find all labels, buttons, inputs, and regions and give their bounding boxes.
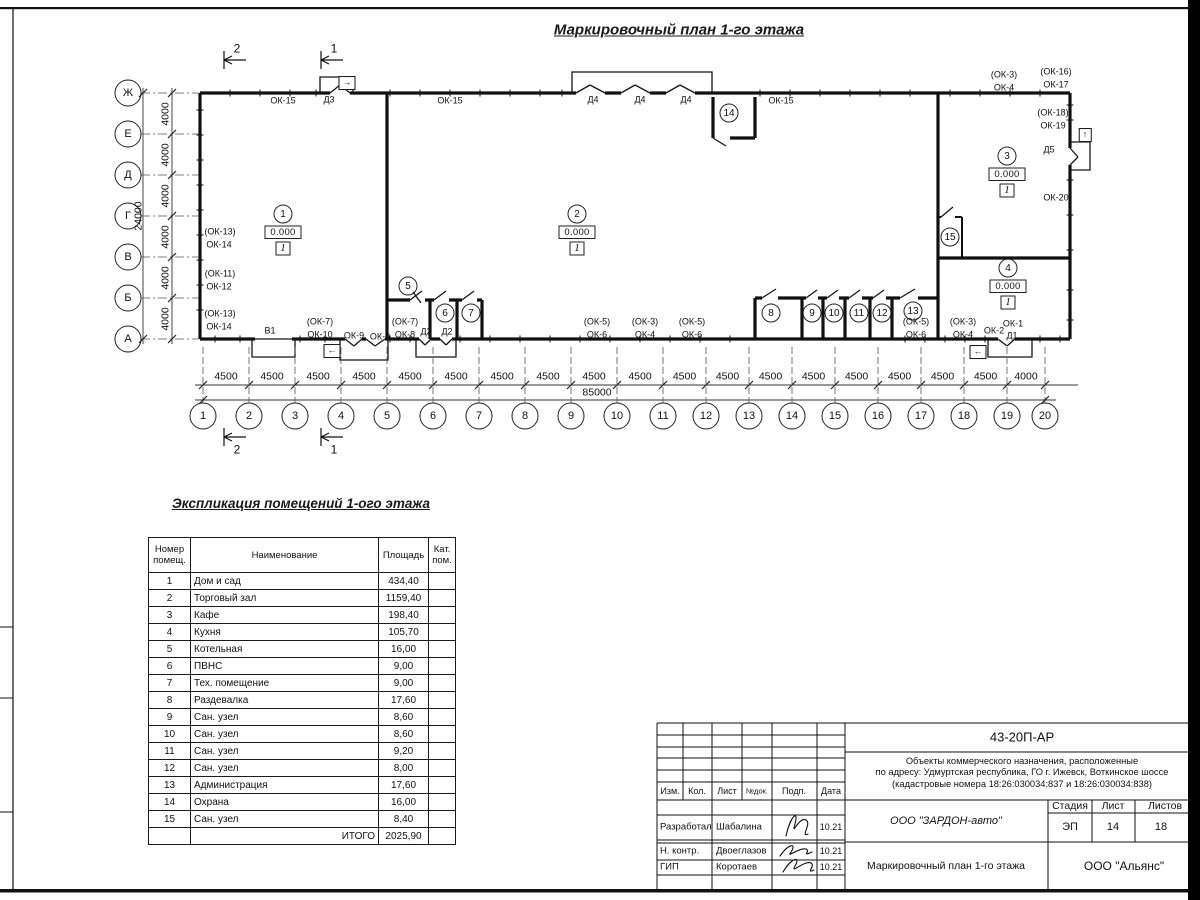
room-name-cell: Сан. узел <box>191 709 379 726</box>
room-area-cell: 17,60 <box>379 777 429 794</box>
room-name-cell: Сан. узел <box>191 760 379 777</box>
sheets-value: 18 <box>1155 821 1167 833</box>
door-mark-label: Д4 <box>587 95 598 104</box>
dimension-label: 4000 <box>160 143 171 166</box>
axis-letter: Б <box>124 293 131 305</box>
door-mark-label: Д2 <box>441 327 452 336</box>
axis-letter: Ж <box>123 88 133 100</box>
axis-number: 13 <box>743 411 755 423</box>
table-row: 1Дом и сад434,40 <box>149 573 456 590</box>
sheet-label: Лист <box>1102 800 1125 812</box>
table-header-row: Номер помещ. Наименование Площадь Кат. п… <box>149 538 456 573</box>
window-mark-label: ОК-4 <box>635 330 655 339</box>
dimension-label: 4500 <box>888 371 911 382</box>
room-category-cell <box>429 760 456 777</box>
room-category-cell <box>429 692 456 709</box>
dimension-label: 4000 <box>160 184 171 207</box>
sheets-label: Листов <box>1148 800 1182 812</box>
room-number: 9 <box>809 308 815 319</box>
floor-type-mark: 1 <box>574 243 580 255</box>
table-row: 4Кухня105,70 <box>149 624 456 641</box>
titleblock-col-header: Кол. <box>688 786 706 796</box>
axis-letter: Е <box>124 129 131 141</box>
table-row: 15Сан. узел8,40 <box>149 811 456 828</box>
axis-letter: А <box>124 334 131 346</box>
col-header-name: Наименование <box>191 538 379 573</box>
section-mark-label: 2 <box>234 444 241 457</box>
door-mark-label: Д2 <box>420 327 431 336</box>
room-area-cell: 434,40 <box>379 573 429 590</box>
room-name-cell: Дом и сад <box>191 573 379 590</box>
titleblock-col-header: Подп. <box>782 786 806 796</box>
project-description-line: Объекты коммерческого назначения, распол… <box>906 756 1138 766</box>
window-mark-label: (ОК-13) <box>204 309 235 318</box>
table-row: 9Сан. узел8,60 <box>149 709 456 726</box>
axis-number: 11 <box>657 411 668 423</box>
window-mark-label: ОК-9 <box>370 332 390 341</box>
total-value: 2025,90 <box>379 828 429 845</box>
door-mark-label: Д3 <box>323 95 334 104</box>
room-category-cell <box>429 607 456 624</box>
room-area-cell: 16,00 <box>379 641 429 658</box>
dimension-label: 4500 <box>628 371 651 382</box>
room-name-cell: Сан. узел <box>191 743 379 760</box>
room-number: 8 <box>768 308 774 319</box>
room-name-cell: Администрация <box>191 777 379 794</box>
doc-number: 43-20П-АР <box>990 730 1054 745</box>
room-category-cell <box>429 709 456 726</box>
gate-mark-label: В1 <box>264 326 275 335</box>
drawing-title: Маркировочный план 1-го этажа <box>554 22 804 39</box>
room-number-cell: 12 <box>149 760 191 777</box>
axis-number: 19 <box>1001 411 1013 423</box>
window-mark-label: ОК-9 <box>344 331 364 340</box>
window-mark-label: ОК-1 <box>1003 319 1023 328</box>
window-mark-label: ОК-14 <box>206 322 231 331</box>
section-mark-label: 1 <box>331 444 338 457</box>
window-mark-label: ОК-4 <box>953 330 973 339</box>
window-mark-label: ОК-6 <box>906 330 926 339</box>
room-category-cell <box>429 573 456 590</box>
dimension-label: 4500 <box>582 371 605 382</box>
table-total-row: ИТОГО 2025,90 <box>149 828 456 845</box>
explication-table: Номер помещ. Наименование Площадь Кат. п… <box>148 537 456 845</box>
room-name-cell: Тех. помещение <box>191 675 379 692</box>
dimension-label: 4500 <box>716 371 739 382</box>
axis-number: 16 <box>872 411 884 423</box>
window-mark-label: (ОК-3) <box>991 70 1017 79</box>
room-category-cell <box>429 624 456 641</box>
exit-arrow-icon: ← <box>324 344 341 358</box>
elevation-mark: 0.000 <box>564 228 589 238</box>
col-header-area: Площадь <box>379 538 429 573</box>
window-mark-label: ОК-4 <box>994 83 1014 92</box>
axis-number: 1 <box>200 411 206 423</box>
window-mark-label: ОК-8 <box>395 330 415 339</box>
exit-arrow-icon: ← <box>970 345 987 359</box>
room-number-cell: 1 <box>149 573 191 590</box>
axis-number: 12 <box>700 411 712 423</box>
drawing-sheet: Маркировочный план 1-го этажа Экспликаци… <box>0 0 1200 900</box>
room-number-cell: 15 <box>149 811 191 828</box>
window-mark-label: (ОК-13) <box>204 227 235 236</box>
window-mark-label: (ОК-7) <box>307 317 333 326</box>
axis-letter: Д <box>124 170 131 182</box>
person-date: 10.21 <box>820 822 843 832</box>
window-mark-label: ОК-2 <box>984 326 1004 335</box>
window-mark-label: (ОК-5) <box>903 317 929 326</box>
room-number-cell: 5 <box>149 641 191 658</box>
room-area-cell: 16,00 <box>379 794 429 811</box>
room-number: 11 <box>854 308 864 319</box>
person-name: Двоеглазов <box>716 846 767 857</box>
table-row: 7Тех. помещение9,00 <box>149 675 456 692</box>
room-number: 4 <box>1005 263 1011 274</box>
axis-letter: В <box>124 252 131 264</box>
window-mark-label: ОК-15 <box>437 96 462 105</box>
room-number: 1 <box>280 209 286 220</box>
person-name: Коротаев <box>716 862 757 873</box>
project-description-line: (кадастровые номера 18:26:030034:837 и 1… <box>892 779 1152 789</box>
floor-type-mark: 1 <box>1004 185 1010 197</box>
room-category-cell <box>429 641 456 658</box>
axis-number: 14 <box>786 411 798 423</box>
table-row: 5Котельная16,00 <box>149 641 456 658</box>
dimension-label: 4500 <box>931 371 954 382</box>
window-mark-label: (ОК-16) <box>1040 67 1071 76</box>
room-number-cell: 3 <box>149 607 191 624</box>
dimension-label: 4500 <box>214 371 237 382</box>
axis-number: 10 <box>611 411 623 423</box>
table-row: 11Сан. узел9,20 <box>149 743 456 760</box>
axis-number: 15 <box>829 411 841 423</box>
window-mark-label: ОК-10 <box>307 330 332 339</box>
room-number: 12 <box>876 308 887 319</box>
room-number-cell: 10 <box>149 726 191 743</box>
exit-arrow-icon: ↑ <box>1079 128 1092 142</box>
sheet-value: 14 <box>1107 821 1119 833</box>
firm-name: ООО "Альянс" <box>1084 859 1164 873</box>
axis-number: 6 <box>430 411 436 423</box>
room-number: 3 <box>1004 151 1010 162</box>
dimension-label: 4500 <box>974 371 997 382</box>
window-mark-label: ОК-20 <box>1043 193 1068 202</box>
table-row: 12Сан. узел8,00 <box>149 760 456 777</box>
stage-value: ЭП <box>1062 821 1078 833</box>
room-area-cell: 1159,40 <box>379 590 429 607</box>
section-mark-label: 1 <box>331 43 338 56</box>
dimension-label: 4500 <box>845 371 868 382</box>
door-mark-label: Д4 <box>680 95 691 104</box>
dimension-label: 4000 <box>160 102 171 125</box>
titleblock-col-header: №док. <box>746 787 768 796</box>
dimension-label: 4500 <box>802 371 825 382</box>
table-row: 14Охрана16,00 <box>149 794 456 811</box>
room-number: 15 <box>944 232 955 243</box>
room-area-cell: 105,70 <box>379 624 429 641</box>
dimension-label: 4000 <box>160 307 171 330</box>
axis-number: 7 <box>476 411 482 423</box>
room-number-cell: 14 <box>149 794 191 811</box>
axis-number: 18 <box>958 411 970 423</box>
room-name-cell: Торговый зал <box>191 590 379 607</box>
dimension-total-label: 24000 <box>133 201 144 230</box>
room-area-cell: 8,00 <box>379 760 429 777</box>
sheet-title: Маркировочный план 1-го этажа <box>867 860 1025 872</box>
axis-number: 9 <box>568 411 574 423</box>
room-category-cell <box>429 777 456 794</box>
dimension-label: 4500 <box>306 371 329 382</box>
room-number: 14 <box>723 108 734 119</box>
room-number-cell: 13 <box>149 777 191 794</box>
company-name: ООО "ЗАРДОН-авто" <box>890 815 1002 827</box>
room-number: 5 <box>405 281 411 292</box>
room-number-cell: 11 <box>149 743 191 760</box>
table-row: 2Торговый зал1159,40 <box>149 590 456 607</box>
window-mark-label: ОК-12 <box>206 282 231 291</box>
titleblock-col-header: Лист <box>717 786 737 796</box>
axis-number: 2 <box>246 411 252 423</box>
person-role: Н. контр. <box>660 846 699 857</box>
room-name-cell: Охрана <box>191 794 379 811</box>
room-category-cell <box>429 794 456 811</box>
room-area-cell: 8,60 <box>379 709 429 726</box>
axis-number: 17 <box>915 411 927 423</box>
explication-title: Экспликация помещений 1-ого этажа <box>172 496 430 511</box>
floor-type-mark: 1 <box>1005 297 1011 309</box>
dimension-label: 4500 <box>352 371 375 382</box>
room-area-cell: 9,20 <box>379 743 429 760</box>
elevation-mark: 0.000 <box>994 170 1019 180</box>
section-mark-label: 2 <box>234 43 241 56</box>
window-mark-label: (ОК-11) <box>205 269 236 278</box>
dimension-total-label: 85000 <box>582 387 611 398</box>
elevation-mark: 0.000 <box>270 228 295 238</box>
room-name-cell: Сан. узел <box>191 811 379 828</box>
total-label: ИТОГО <box>191 828 379 845</box>
room-name-cell: Котельная <box>191 641 379 658</box>
axis-number: 5 <box>384 411 390 423</box>
window-mark-label: (ОК-5) <box>679 317 705 326</box>
table-row: 8Раздевалка17,60 <box>149 692 456 709</box>
room-name-cell: Сан. узел <box>191 726 379 743</box>
dimension-label: 4000 <box>160 225 171 248</box>
window-mark-label: (ОК-18) <box>1037 108 1068 117</box>
col-header-number: Номер помещ. <box>149 538 191 573</box>
room-category-cell <box>429 743 456 760</box>
axis-number: 4 <box>338 411 344 423</box>
room-number: 13 <box>907 306 918 317</box>
floor-type-mark: 1 <box>280 243 286 255</box>
person-date: 10.21 <box>820 862 843 872</box>
window-mark-label: ОК-15 <box>768 96 793 105</box>
dimension-label: 4500 <box>444 371 467 382</box>
room-area-cell: 9,00 <box>379 675 429 692</box>
person-name: Шабалина <box>716 822 762 833</box>
room-name-cell: Кухня <box>191 624 379 641</box>
room-number: 6 <box>442 308 448 319</box>
room-area-cell: 198,40 <box>379 607 429 624</box>
table-row: 10Сан. узел8,60 <box>149 726 456 743</box>
table-row: 6ПВНС9,00 <box>149 658 456 675</box>
window-mark-label: (ОК-7) <box>392 317 418 326</box>
window-mark-label: ОК-15 <box>270 96 295 105</box>
room-area-cell: 8,60 <box>379 726 429 743</box>
exit-arrow-icon: → <box>339 76 356 90</box>
titleblock-col-header: Изм. <box>660 786 679 796</box>
door-mark-label: Д4 <box>634 95 645 104</box>
room-number-cell: 2 <box>149 590 191 607</box>
window-mark-label: ОК-6 <box>682 330 702 339</box>
person-role: ГИП <box>660 862 679 873</box>
axis-letter: Г <box>125 211 131 223</box>
window-mark-label: (ОК-5) <box>584 317 610 326</box>
window-mark-label: (ОК-3) <box>632 317 658 326</box>
room-category-cell <box>429 675 456 692</box>
room-number-cell: 6 <box>149 658 191 675</box>
room-area-cell: 8,40 <box>379 811 429 828</box>
room-name-cell: Раздевалка <box>191 692 379 709</box>
stage-label: Стадия <box>1052 800 1088 812</box>
sheet-right-edge-bar <box>1188 0 1200 900</box>
dimension-label: 4500 <box>260 371 283 382</box>
room-number: 7 <box>468 308 474 319</box>
dimension-label: 4500 <box>490 371 513 382</box>
room-name-cell: ПВНС <box>191 658 379 675</box>
door-mark-label: Д1 <box>1006 331 1017 340</box>
dimension-label: 4500 <box>398 371 421 382</box>
window-mark-label: (ОК-3) <box>950 317 976 326</box>
window-mark-label: ОК-17 <box>1043 80 1068 89</box>
project-description-line: по адресу: Удмуртская республика, ГО г. … <box>876 767 1169 777</box>
door-mark-label: Д5 <box>1043 145 1054 154</box>
room-category-cell <box>429 726 456 743</box>
window-mark-label: ОК-19 <box>1040 121 1065 130</box>
room-number: 2 <box>574 209 580 220</box>
room-number: 10 <box>828 308 839 319</box>
axis-number: 20 <box>1039 411 1051 423</box>
window-mark-label: ОК-14 <box>206 240 231 249</box>
dimension-label: 4000 <box>1014 371 1037 382</box>
col-header-category: Кат. пом. <box>429 538 456 573</box>
axis-number: 3 <box>292 411 298 423</box>
elevation-mark: 0.000 <box>995 282 1020 292</box>
dimension-label: 4500 <box>673 371 696 382</box>
room-area-cell: 9,00 <box>379 658 429 675</box>
room-number-cell: 9 <box>149 709 191 726</box>
room-number-cell: 8 <box>149 692 191 709</box>
dimension-label: 4500 <box>536 371 559 382</box>
table-row: 3Кафе198,40 <box>149 607 456 624</box>
room-category-cell <box>429 590 456 607</box>
person-role: Разработал <box>660 822 712 833</box>
room-category-cell <box>429 658 456 675</box>
person-date: 10.21 <box>820 846 843 856</box>
room-category-cell <box>429 811 456 828</box>
room-number-cell: 4 <box>149 624 191 641</box>
room-area-cell: 17,60 <box>379 692 429 709</box>
titleblock-col-header: Дата <box>821 786 841 796</box>
room-name-cell: Кафе <box>191 607 379 624</box>
axis-number: 8 <box>522 411 528 423</box>
room-number-cell: 7 <box>149 675 191 692</box>
dimension-label: 4000 <box>160 266 171 289</box>
table-row: 13Администрация17,60 <box>149 777 456 794</box>
dimension-label: 4500 <box>759 371 782 382</box>
window-mark-label: ОК-6 <box>587 330 607 339</box>
